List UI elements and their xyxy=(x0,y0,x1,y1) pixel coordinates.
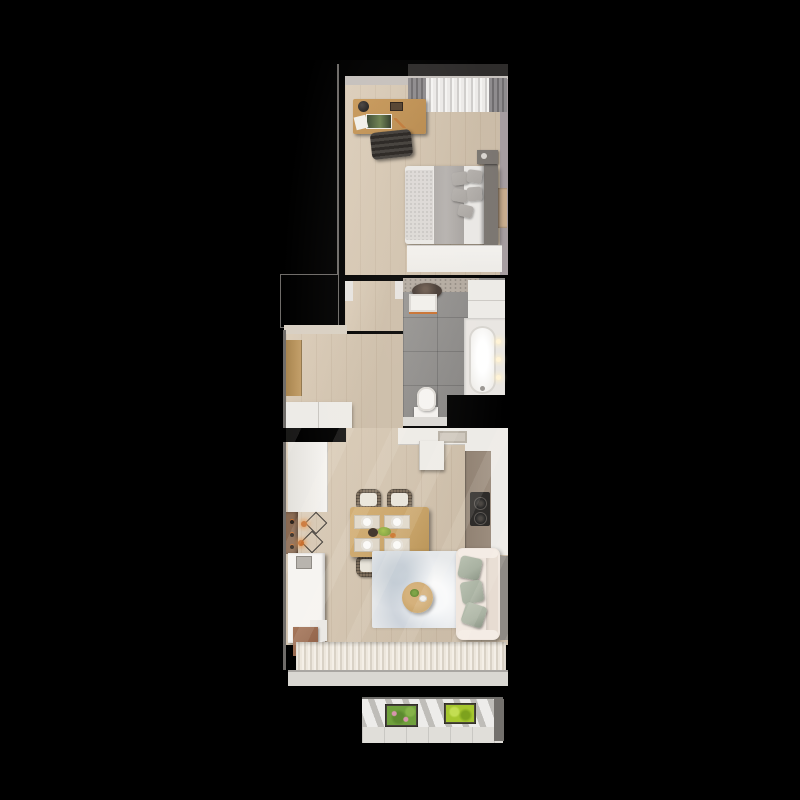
bedroom-door-frame xyxy=(345,281,353,301)
kitchen-left-cabinet xyxy=(288,442,328,512)
balcony-side-column xyxy=(494,699,504,741)
exterior-shaft-outline xyxy=(280,274,339,328)
desk-stationery xyxy=(394,118,406,128)
shelf-bottle xyxy=(290,545,294,549)
shelf-bottle xyxy=(290,520,294,524)
bed-textured-throw xyxy=(405,170,433,240)
wall-next-to-sofa xyxy=(500,556,508,640)
dinner-plate xyxy=(391,539,403,551)
bathroom-wall-light xyxy=(496,339,501,344)
curtain-sheer xyxy=(426,78,489,112)
dinner-plate xyxy=(391,516,403,528)
shelf-bottle xyxy=(290,533,294,537)
bedroom-wardrobe xyxy=(407,245,502,272)
bathtub-faucet xyxy=(480,386,485,391)
sofa-armrest xyxy=(458,630,498,639)
hall-wood-wardrobe xyxy=(286,340,302,396)
nightstand-decor xyxy=(481,153,487,159)
bathroom-vanity-unit xyxy=(409,294,437,314)
sofa-pillow xyxy=(457,555,483,581)
sofa-pillow xyxy=(459,579,484,604)
curtain-panel-right xyxy=(489,78,507,112)
table-fruit xyxy=(390,533,396,538)
planter-pink-flowers xyxy=(387,706,416,725)
planter-lime-plants xyxy=(446,705,474,722)
pendant-bulb xyxy=(298,540,304,546)
toilet xyxy=(417,387,436,411)
bathroom-cabinet-seam xyxy=(468,300,505,301)
chair-cushion xyxy=(391,493,408,506)
cooktop-burner xyxy=(474,512,487,525)
nightstand xyxy=(477,150,498,164)
desk-picture-frame xyxy=(390,102,403,111)
desk-lamp xyxy=(358,101,369,112)
coffee-table-plant xyxy=(410,589,419,597)
dinner-plate xyxy=(361,516,373,528)
coffee-table-dish xyxy=(419,595,427,602)
kitchen-tall-cabinet xyxy=(419,441,444,470)
chair-cushion xyxy=(360,493,377,506)
desk-chair xyxy=(370,129,414,160)
building-notch xyxy=(280,428,346,442)
bedroom-outer-wall-edge xyxy=(337,64,339,276)
bathtub xyxy=(469,326,496,394)
bathroom-bottom-wall xyxy=(403,417,449,426)
table-center-bowl xyxy=(368,528,378,537)
bed-pillow xyxy=(466,169,482,184)
cooktop-burner xyxy=(474,497,487,510)
building-notch xyxy=(447,395,510,430)
desk-open-laptop xyxy=(367,115,391,128)
bed-headboard xyxy=(484,164,498,246)
bathroom-wall-light xyxy=(496,357,501,362)
window-wall-sheer-curtain xyxy=(296,642,506,671)
bed-pillow xyxy=(466,186,482,201)
pendant-bulb xyxy=(301,521,307,527)
apartment-floor-plan xyxy=(0,0,800,800)
bedroom-door-frame xyxy=(395,281,403,299)
sofa-backrest xyxy=(486,551,498,637)
bathroom-wall-light xyxy=(496,375,501,380)
balcony-floor xyxy=(362,697,503,730)
dinner-plate xyxy=(361,539,373,551)
window-sill xyxy=(288,670,508,686)
balcony-railing-ledge xyxy=(362,727,503,743)
counter-inset xyxy=(296,556,312,569)
round-coffee-table xyxy=(402,582,433,613)
